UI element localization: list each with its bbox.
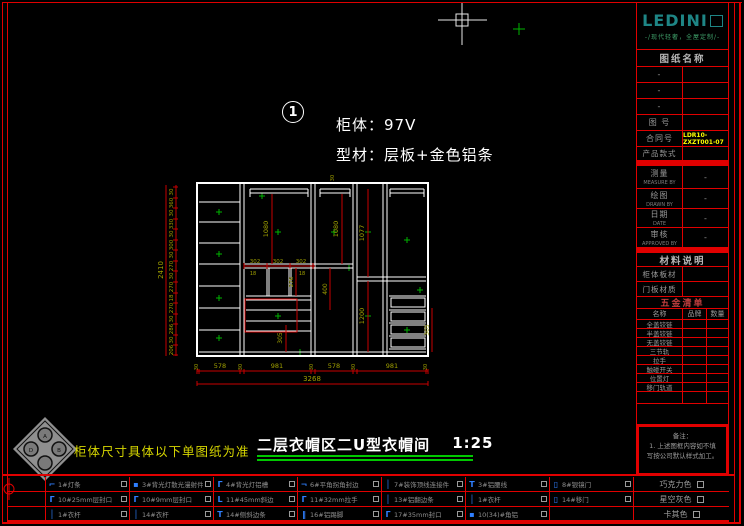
title-underline-1 (257, 455, 473, 457)
date-label: 日期 DATE (637, 209, 683, 227)
checkbox[interactable] (625, 496, 631, 502)
drawing-scale: 1:25 (452, 434, 493, 455)
checkbox[interactable] (697, 481, 704, 488)
legend-item[interactable]: Г11#32mm拉手 (298, 492, 382, 506)
legend-item[interactable]: Г17#35mm封口 (382, 507, 466, 521)
hw-brand-cell[interactable] (683, 374, 707, 382)
drawn-row: 绘图 DRAWN BY - (637, 189, 728, 209)
hardware-header: 五金清单 (637, 297, 728, 309)
product-style-value[interactable] (683, 147, 728, 160)
profile-icon: ▯ (552, 480, 560, 489)
hw-qty-cell[interactable] (707, 365, 728, 373)
cabinet-model-label: 柜体：97V (336, 114, 416, 135)
checkbox[interactable] (373, 481, 379, 487)
measure-sublabel: MEASURE BY (643, 180, 675, 186)
date-row: 日期 DATE - (637, 209, 728, 228)
svg-text:1077: 1077 (358, 225, 366, 242)
legend-item[interactable]: │1#衣杆 (46, 507, 130, 521)
svg-text:302: 302 (273, 259, 284, 265)
approved-value[interactable]: - (683, 228, 728, 247)
dimension-disclaimer-note: 柜体尺寸具体以下单图纸为准 (74, 441, 250, 460)
hw-item-name: 三节轨 (637, 347, 683, 355)
legend-item[interactable]: Т3#铝腰线 (466, 477, 550, 491)
profile-icon: Г (132, 495, 140, 504)
legend-item[interactable]: Г4#背光灯铝槽 (214, 477, 298, 491)
svg-text:286: 286 (169, 323, 175, 334)
svg-text:578: 578 (214, 362, 226, 370)
blank-row-3: - (637, 99, 728, 115)
legend-item-empty (550, 507, 634, 521)
material-header: 材料说明 (637, 253, 728, 267)
legend-item[interactable]: ⌐1#灯条 (46, 477, 130, 491)
hw-brand-cell[interactable] (683, 392, 707, 403)
cabinet-board-label: 柜体板材 (637, 267, 683, 281)
svg-text:30: 30 (238, 364, 244, 370)
hw-item-name: 无盖铰链 (637, 338, 683, 346)
cabinet-board-value[interactable] (683, 267, 728, 281)
drawing-no-label: 图 号 (637, 115, 683, 130)
svg-text:30: 30 (330, 175, 336, 181)
svg-text:1080: 1080 (332, 221, 340, 238)
checkbox[interactable] (541, 511, 547, 517)
legend-item[interactable]: │7#装饰顶线连接件 (382, 477, 466, 491)
date-value[interactable]: - (683, 209, 728, 227)
frame-right-inner (734, 2, 735, 523)
drawing-title: 二层衣帽区二U型衣帽间 (257, 434, 430, 455)
profile-icon: ¬ (300, 480, 308, 489)
title-block: LEDINI -/现代轻奢，全屋定制/- 图纸名称 - - - 图 号 合同号 … (636, 3, 729, 475)
drawn-sublabel: DRAWN BY (646, 202, 673, 208)
hw-qty-cell[interactable] (707, 347, 728, 355)
hw-qty-cell[interactable] (707, 392, 728, 403)
checkbox[interactable] (121, 481, 127, 487)
drawn-value[interactable]: - (683, 189, 728, 208)
svg-text:276: 276 (289, 276, 295, 287)
hardware-row-empty (637, 392, 728, 404)
checkbox[interactable] (289, 496, 295, 502)
blank-row-1: - (637, 67, 728, 83)
brand-logo-box: LEDINI -/现代轻奢，全屋定制/- (637, 3, 728, 50)
profile-material-label: 型材：层板+金色铝条 (336, 144, 494, 165)
svg-text:18: 18 (169, 294, 175, 301)
hw-qty-cell[interactable] (707, 374, 728, 382)
corner-ornament: A D B (13, 417, 77, 481)
checkbox[interactable] (457, 481, 463, 487)
measure-value[interactable]: - (683, 166, 728, 188)
hw-item-name: 半盖铰链 (637, 329, 683, 337)
svg-text:30: 30 (169, 251, 175, 258)
hw-qty-cell[interactable] (707, 356, 728, 364)
color-option[interactable]: 卡其色 (634, 507, 729, 521)
checkbox[interactable] (541, 496, 547, 502)
hw-qty-cell[interactable] (707, 320, 728, 328)
checkbox[interactable] (205, 496, 211, 502)
svg-text:18: 18 (299, 271, 305, 277)
svg-text:30: 30 (169, 188, 175, 195)
legend-row-2: Г10#25mm层封口 Г10#9mm层封口 L11#45mm斜边 Г11#32… (8, 492, 729, 507)
drawing-no-value[interactable] (683, 115, 728, 130)
hw-brand-cell[interactable] (683, 320, 707, 328)
hw-item-name: 位置灯 (637, 374, 683, 382)
legend-item[interactable]: L11#45mm斜边 (214, 492, 298, 506)
hw-item-name: 拉手 (637, 356, 683, 364)
door-board-label: 门板材质 (637, 282, 683, 296)
hw-brand-cell[interactable] (683, 329, 707, 337)
profile-icon: ▯ (552, 495, 560, 504)
detail-marker-1: 1 (282, 101, 304, 123)
legend-item[interactable]: ▯8#银镜门 (550, 477, 634, 491)
contract-no-label: 合同号 (637, 131, 683, 146)
notes-line: 写按公司默认样式加工。 (642, 451, 723, 461)
svg-text:206: 206 (169, 344, 175, 355)
profile-icon: Г (300, 495, 308, 504)
drawing-no-row: 图 号 (637, 115, 728, 131)
legend-item[interactable]: Г10#9mm层封口 (130, 492, 214, 506)
svg-text:981: 981 (271, 362, 283, 370)
blank-row-2: - (637, 83, 728, 99)
legend-item[interactable]: ‖16#铝踢脚 (298, 507, 382, 521)
svg-text:360: 360 (169, 197, 175, 208)
measure-label: 测量 MEASURE BY (637, 166, 683, 188)
hardware-row: 三节轨 (637, 347, 728, 356)
checkbox[interactable] (697, 496, 704, 503)
notes-title: 备注： (642, 431, 723, 441)
blank-row-dash: - (637, 99, 683, 114)
legend-margin-cell (8, 492, 46, 506)
checkbox[interactable] (625, 481, 631, 487)
legend-item[interactable]: ▪3#背光灯散光漫射件 (130, 477, 214, 491)
svg-text:30: 30 (194, 364, 200, 370)
hardware-row-empty-tall (637, 404, 728, 425)
checkbox[interactable] (205, 481, 211, 487)
profile-icon: Г (48, 495, 56, 504)
frame-top (2, 2, 742, 3)
frame-right-outer (739, 2, 741, 523)
profile-icon: ▪ (468, 510, 476, 519)
checkbox[interactable] (541, 481, 547, 487)
profile-icon: │ (468, 495, 476, 504)
crosshair-cursor[interactable] (438, 2, 487, 45)
hw-brand-cell[interactable] (683, 365, 707, 373)
checkbox[interactable] (373, 511, 379, 517)
svg-text:30: 30 (309, 364, 315, 370)
svg-text:302: 302 (250, 259, 261, 265)
hw-qty-cell[interactable] (707, 338, 728, 346)
checkbox[interactable] (693, 511, 700, 518)
hw-col-name: 名称 (637, 309, 683, 319)
legend-item[interactable]: ▯14#移门 (550, 492, 634, 506)
checkbox[interactable] (457, 511, 463, 517)
material-legend: ⌐1#灯条 ▪3#背光灯散光漫射件 Г4#背光灯铝槽 ¬6#平角拐角封边 │7#… (8, 477, 729, 522)
wardrobe-elevation (197, 183, 428, 356)
profile-icon: Г (216, 480, 224, 489)
brand-logo: LEDINI (642, 11, 708, 30)
contract-no-value[interactable]: LDR10-ZXZT001-07 (683, 131, 728, 146)
cabinet-board-row: 柜体板材 (637, 267, 728, 282)
svg-text:A: A (43, 434, 47, 440)
svg-text:305: 305 (424, 324, 431, 336)
hw-qty-cell[interactable] (707, 329, 728, 337)
blank-row-dash: - (637, 67, 683, 82)
checkbox[interactable] (121, 496, 127, 502)
brand-tagline: -/现代轻奢，全屋定制/- (645, 32, 720, 41)
date-sublabel: DATE (653, 221, 666, 227)
hw-brand-cell[interactable] (683, 347, 707, 355)
profile-icon: │ (384, 480, 392, 489)
legend-item[interactable]: Т14#侧斜边条 (214, 507, 298, 521)
hw-brand-cell[interactable] (683, 383, 707, 391)
drawing-name-header: 图纸名称 (637, 50, 728, 67)
checkbox[interactable] (289, 511, 295, 517)
svg-text:30: 30 (169, 209, 175, 216)
measure-row: 测量 MEASURE BY - (637, 166, 728, 189)
legend-margin-cell (8, 507, 46, 521)
svg-text:30: 30 (169, 230, 175, 237)
svg-text:330: 330 (169, 218, 175, 229)
hw-item-name: 触碰开关 (637, 365, 683, 373)
approved-label: 审核 APPROVED BY (637, 228, 683, 247)
legend-item[interactable]: ▪10(34)#角铝 (466, 507, 550, 521)
legend-item[interactable]: Г10#25mm层封口 (46, 492, 130, 506)
svg-text:270: 270 (169, 302, 175, 313)
legend-item[interactable]: ¬6#平角拐角封边 (298, 477, 382, 491)
blank-row-dash: - (637, 83, 683, 98)
profile-icon: │ (384, 495, 392, 504)
checkbox[interactable] (457, 496, 463, 502)
legend-item[interactable]: │14#衣杆 (130, 507, 214, 521)
svg-text:400: 400 (322, 283, 329, 295)
svg-text:300: 300 (169, 239, 175, 250)
contract-no-row: 合同号 LDR10-ZXZT001-07 (637, 131, 728, 147)
legend-item[interactable]: │13#铝翻边条 (382, 492, 466, 506)
frame-bottom (2, 522, 741, 524)
legend-margin-cell (8, 477, 46, 491)
blank-row-value[interactable] (683, 99, 728, 114)
frame-left-inner (7, 2, 8, 522)
title-underline-2 (257, 459, 473, 461)
frame-left-outer (2, 2, 3, 523)
svg-text:18: 18 (250, 271, 256, 277)
product-style-row: 产品款式 (637, 147, 728, 161)
profile-icon: ▪ (132, 480, 140, 489)
checkbox[interactable] (289, 481, 295, 487)
blank-row-value[interactable] (683, 83, 728, 98)
svg-text:B: B (57, 448, 61, 454)
svg-text:578: 578 (328, 362, 340, 370)
svg-text:1080: 1080 (262, 221, 270, 238)
color-option[interactable]: 星空灰色 (634, 492, 729, 506)
svg-text:981: 981 (386, 362, 398, 370)
profile-icon: Т (216, 510, 224, 519)
profile-icon: Г (384, 510, 392, 519)
hw-item-name: 移门轨道 (637, 383, 683, 391)
hw-col-qty: 数量 (707, 309, 728, 319)
hw-brand-cell[interactable] (683, 338, 707, 346)
legend-row-1: ⌐1#灯条 ▪3#背光灯散光漫射件 Г4#背光灯铝槽 ¬6#平角拐角封边 │7#… (8, 477, 729, 492)
notes-box: 备注： 1. 上述图框内容如不填 写按公司默认样式加工。 (637, 425, 728, 475)
product-style-label: 产品款式 (637, 147, 683, 160)
approved-row: 审核 APPROVED BY - (637, 228, 728, 248)
legend-top-separator (2, 474, 735, 476)
profile-icon: ‖ (300, 510, 308, 519)
legend-item[interactable]: │1#衣杆 (466, 492, 550, 506)
notes-line: 1. 上述图框内容如不填 (642, 441, 723, 451)
checkbox[interactable] (205, 511, 211, 517)
hardware-row: 移门轨道 (637, 383, 728, 392)
hw-col-brand: 品牌 (683, 309, 707, 319)
legend-row-3: │1#衣杆 │14#衣杆 Т14#侧斜边条 ‖16#铝踢脚 Г17#35mm封口… (8, 507, 729, 522)
svg-text:2410: 2410 (157, 261, 165, 279)
svg-text:30: 30 (423, 364, 429, 370)
door-board-value[interactable] (683, 282, 728, 296)
profile-icon: ⌐ (48, 480, 56, 489)
drawing-title-row: 二层衣帽区二U型衣帽间 1:25 (257, 434, 494, 455)
svg-text:305: 305 (277, 332, 284, 344)
svg-text:30: 30 (351, 364, 357, 370)
svg-text:30: 30 (169, 272, 175, 279)
blank-row-value[interactable] (683, 67, 728, 82)
svg-text:D: D (29, 448, 33, 454)
svg-text:30: 30 (169, 336, 175, 343)
cad-application-window: 2410 30 360 30 330 30 300 30 270 30 270 … (0, 0, 744, 526)
color-option[interactable]: 巧克力色 (634, 477, 729, 491)
checkbox[interactable] (373, 496, 379, 502)
profile-icon: │ (132, 510, 140, 519)
drawn-label: 绘图 DRAWN BY (637, 189, 683, 208)
svg-text:30: 30 (169, 315, 175, 322)
hw-item-name: 全盖铰链 (637, 320, 683, 328)
checkbox[interactable] (121, 511, 127, 517)
svg-text:302: 302 (296, 259, 307, 265)
svg-text:3268: 3268 (303, 375, 321, 383)
brand-badge-icon (710, 15, 723, 27)
profile-icon: │ (48, 510, 56, 519)
hw-item-name (637, 392, 683, 403)
svg-text:270: 270 (169, 281, 175, 292)
hw-brand-cell[interactable] (683, 356, 707, 364)
profile-icon: L (216, 495, 224, 504)
approved-sublabel: APPROVED BY (642, 241, 677, 247)
svg-text:1200: 1200 (358, 308, 366, 325)
hw-qty-cell[interactable] (707, 383, 728, 391)
door-board-row: 门板材质 (637, 282, 728, 297)
svg-text:270: 270 (169, 260, 175, 271)
profile-icon: Т (468, 480, 476, 489)
